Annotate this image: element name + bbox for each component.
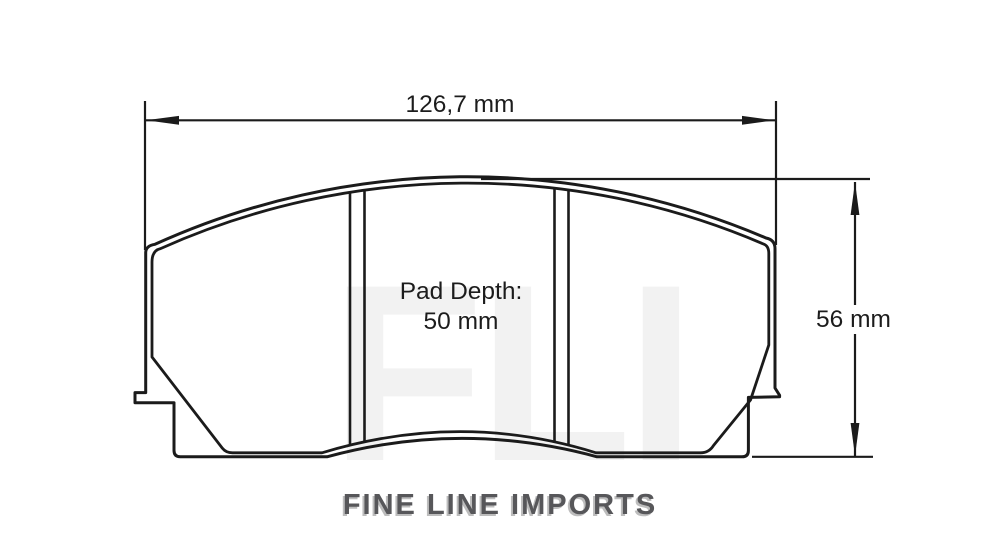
brand-logo: FINE LINE IMPORTS [0,489,1000,522]
height-arrow-top [851,182,860,215]
pad-depth-annotation: Pad Depth: 50 mm [311,277,611,336]
width-arrow-left [146,116,179,125]
pad-depth-annotation-line1: Pad Depth: [311,277,611,307]
width-dimension-label: 126,7 mm [310,92,610,117]
brake-pad-drawing [0,0,1000,538]
brake-pad-diagram-page: FLI [0,0,1000,538]
height-dimension-label-text: 56 mm [810,305,897,334]
pad-depth-annotation-line2: 50 mm [311,307,611,337]
height-dimension-label: 56 mm [780,305,927,334]
width-arrow-right [742,116,775,125]
height-arrow-bottom [851,423,860,456]
